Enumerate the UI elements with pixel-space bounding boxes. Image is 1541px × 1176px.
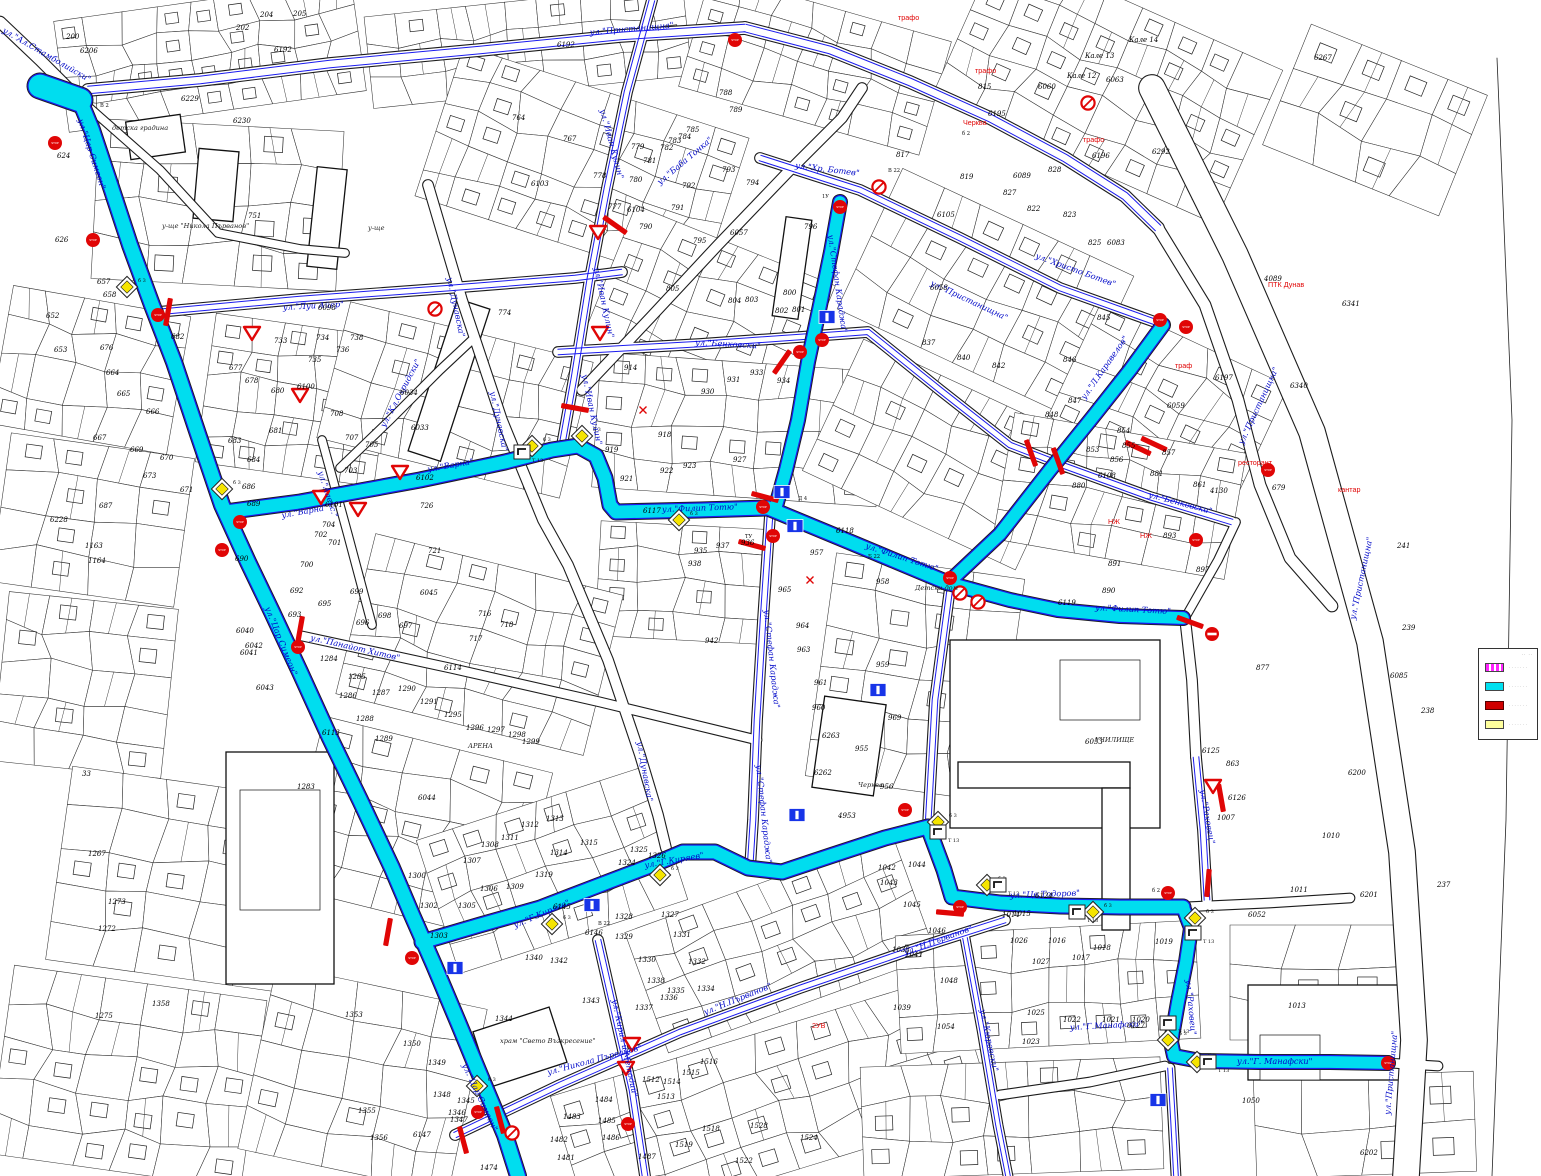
stop-sign-icon: STOP [1161,886,1175,900]
parcel-number: 736 [336,346,350,354]
legend-swatch [1485,701,1504,710]
parcel-number: 863 [1226,760,1240,768]
parcel-number: 942 [705,637,719,645]
parcel-number: 803 [745,296,759,304]
info-sign-icon [584,899,600,912]
parcel-number: 815 [978,83,992,91]
parcel-number: 933 [750,369,764,377]
parcel-number: 1039 [893,1004,911,1012]
svg-text:STOP: STOP [769,534,777,538]
parcel-number: 6126 [1228,794,1246,802]
parcel-number: 6228 [50,516,68,524]
parcel-number: 6105 [937,211,955,219]
svg-text:STOP: STOP [1192,538,1200,542]
parcel-number: 1487 [638,1153,656,1161]
parcel-number: 1290 [398,685,416,693]
parcel-number: 202 [235,24,250,32]
building-footprint [958,762,1130,788]
parcel-number: Кале 14 [1128,36,1158,44]
parcel-number: 1019 [1155,938,1173,946]
svg-text:STOP: STOP [408,956,416,960]
parcel-number: 1013 [1288,1002,1306,1010]
parcel-number: 767 [563,135,577,143]
parcel-number: 1054 [937,1023,955,1031]
stop-sign-icon: STOP [898,803,912,817]
parcel-number: 707 [345,434,359,442]
parcel-number: 778 [593,172,607,180]
yield-sign-icon [350,503,366,516]
parcel-number: 4953 [837,812,856,820]
parcel-number: 1486 [602,1134,620,1142]
parcel-number: 6192 [274,46,292,54]
svg-text:STOP: STOP [154,313,162,317]
poi-label-red: Черква [963,118,987,127]
parcel-number: 6045 [420,589,438,597]
sign-code-label: ТУ [745,534,752,540]
stop-sign-icon: STOP [833,200,847,214]
parcel-number: 697 [399,622,413,630]
info-sign-icon [870,684,886,697]
prohibition-sign-icon [872,180,885,193]
parcel-number: 777 [608,203,622,211]
parcel-number: Кале 13 [1084,52,1115,60]
stop-sign-icon: STOP [1153,313,1167,327]
parcel-number: 6108 [1098,472,1116,480]
red-x-marker-icon [807,577,814,584]
svg-text:STOP: STOP [236,520,244,524]
parcel-number: 1519 [675,1141,693,1149]
parcel-number: 965 [778,586,792,594]
legend-item: ······· [1485,658,1533,677]
parcel-number: 1349 [428,1059,446,1067]
parcel-number: 963 [797,646,811,654]
parcel-number: 671 [180,486,193,494]
poi-label: детска градина [112,124,168,132]
parcel-number: 1331 [673,931,691,939]
parcel-number: 1326 [648,852,666,860]
parcel-number: 825 [1088,239,1102,247]
svg-text:б 3: б 3 [563,914,571,921]
parcel-number: 726 [420,502,434,510]
parcel-number: 6340 [1290,382,1308,390]
parcel-number: 969 [888,714,902,722]
parcel-number: 1016 [1048,937,1066,945]
parcel-number: 669 [130,446,144,454]
legend-item: ······· [1485,696,1533,715]
parcel-number: 237 [1436,881,1451,889]
parcel-number: 1347 [450,1116,468,1124]
info-sign-icon [447,962,463,975]
parcel-number: 6063 [1106,76,1124,84]
parcel-number: 919 [605,446,619,454]
poi-label-red: траф [1175,361,1192,370]
parcel-number: 721 [428,547,441,555]
parcel-number: 1289 [375,735,393,743]
parcel-number: 1027 [1032,958,1050,966]
poi-label-red: кантар [1338,485,1360,494]
parcel-number: 1048 [940,977,958,985]
parcel-number: 205 [292,10,307,18]
parcel-number: 657 [97,278,111,286]
parcel-number: 1483 [563,1113,581,1121]
parcel-number: 959 [876,661,890,669]
stop-sign-icon: STOP [405,951,419,965]
parcel-number: 1275 [95,1012,113,1020]
parcel-number: 840 [957,354,971,362]
parcel-number: 733 [274,337,288,345]
parcel-number: 890 [1102,587,1116,595]
parcel-number: 1291 [420,698,438,706]
stop-sign-icon: STOP [766,529,780,543]
parcel-number: 823 [1063,211,1077,219]
parcel-number: 1018 [1093,944,1111,952]
parcel-number: 937 [716,542,730,550]
parcel-number: 877 [1256,664,1270,672]
parcel-number: 6098 [318,304,336,312]
svg-text:STOP: STOP [818,338,826,342]
parcel-number: 1342 [550,957,568,965]
info-sign-icon [774,486,790,499]
parcel-number: 1302 [420,902,438,910]
parcel-number: 1330 [638,956,656,964]
parcel-number: 796 [804,223,818,231]
parcel-number: 1284 [320,655,338,663]
parcel-number: 779 [631,143,645,151]
parcel-number: 853 [1086,446,1100,454]
parcel-number: 1319 [535,871,553,879]
parcel-number: 846 [1063,356,1077,364]
parcel-number: 1513 [657,1093,675,1101]
parcel-number: 938 [688,560,702,568]
parcel-number: 665 [117,390,131,398]
stop-sign-icon: STOP [1189,533,1203,547]
stop-sign-icon: STOP [621,1117,635,1131]
parcel-number: 652 [46,312,60,320]
parcel-number: 6197 [1215,374,1233,382]
parcel-number: 6101 [325,501,343,509]
stop-sign-icon: STOP [48,136,62,150]
poi-label: УЧИЛИЩЕ [1095,736,1134,744]
parcel-number: 6043 [256,684,274,692]
parcel-number: 6200 [1348,769,1366,777]
svg-text:STOP: STOP [901,808,909,812]
parcel-number: 686 [242,483,256,491]
parcel-number: 960 [812,704,826,712]
poi-label: храм "Свето Възкресение" [500,1037,596,1045]
parcel-number: 891 [1108,560,1121,568]
parcel-number: 6057 [730,229,748,237]
parcel-number: 684 [247,456,260,464]
parcel-number: 1286 [339,692,357,700]
parcel-number: 689 [247,500,261,508]
poi-label-red: НЖ [1108,517,1120,526]
parcel-number: 6229 [181,95,199,103]
parcel-number: 1345 [457,1097,475,1105]
parcel-number: 204 [259,11,273,19]
parcel-number: 1023 [1022,1038,1040,1046]
parcel-number: 893 [1163,532,1177,540]
parcel-number: 708 [330,410,344,418]
parcel-number: 1512 [642,1076,660,1084]
parcel-number: 735 [308,356,322,364]
svg-text:б 3: б 3 [1206,908,1214,915]
parcel-number: 4130 [1209,487,1228,495]
info-sign-icon [787,520,803,533]
parcel-number: 819 [960,173,974,181]
svg-text:б 3: б 3 [949,812,957,819]
parcel-number: 1485 [598,1117,616,1125]
parcel-number: 964 [796,622,809,630]
parcel-number: 704 [322,521,335,529]
parcel-number: 667 [93,434,107,442]
stop-sign-icon: STOP [215,543,229,557]
road-closure-bar-icon [1216,784,1226,812]
parcel-number: 1046 [928,927,946,935]
parcel-number: 1043 [880,879,898,887]
parcel-number: 6103 [531,180,549,188]
building-footprint [240,790,320,910]
parcel-number: 930 [701,388,715,396]
parcel-number: 1295 [444,711,462,719]
svg-text:STOP: STOP [51,141,59,145]
parcel-number: 6040 [236,627,254,635]
parcel-number: 666 [146,408,160,416]
svg-text:б 3: б 3 [671,865,679,872]
poi-label: у-ще [367,224,385,232]
parcel-number: 1022 [1063,1016,1081,1024]
parcel-number: 1313 [546,815,564,823]
parcel-number: 1524 [800,1134,818,1142]
parcel-number: 6100 [297,383,315,391]
parcel-number: 822 [1027,205,1041,213]
parcel-number: 690 [235,555,249,563]
parcel-number: 1348 [433,1091,451,1099]
parcel-number: 880 [1072,482,1086,490]
parcel-number: 1047 [905,951,923,959]
parcel-number: 6267 [1314,54,1332,62]
sign-code-label: В 22 [598,921,610,927]
cadastral-map-svg[interactable]: STOPSTOPSTOPSTOPSTOPSTOPSTOPSTOPSTOPSTOP… [0,0,1541,1176]
parcel-number: 6127 [1127,1022,1145,1030]
parcel-number: 1350 [403,1040,421,1048]
svg-text:STOP: STOP [1182,325,1190,329]
parcel-number: 1522 [735,1157,753,1165]
parcel-number: 701 [328,539,341,547]
parcel-number: 1344 [495,1015,513,1023]
parcel-number: 847 [1068,397,1082,405]
parcel-number: 238 [1420,707,1435,715]
parcel-number: 33 [82,770,91,778]
parcel-number: 802 [775,307,789,315]
parcel-number: 1021 [1102,1016,1120,1024]
parcel-number: 6145 [553,903,571,911]
parcel-number: 774 [498,309,511,317]
parcel-number: 703 [344,467,358,475]
parcel-number: 1358 [152,1000,170,1008]
parcel-number: 1514 [663,1078,681,1086]
parcel-number: 837 [922,339,936,347]
parcel-number: 1314 [550,849,568,857]
parcel-number: 664 [106,369,119,377]
parcel-number: 626 [55,236,69,244]
parcel-number: 695 [318,600,332,608]
poi-label-red: трафо [1083,135,1104,144]
svg-text:STOP: STOP [624,1122,632,1126]
parcel-number: 1285 [348,673,366,681]
parcel-number: 1353 [345,1011,363,1019]
parcel-number: 1042 [878,864,896,872]
parcel-number: 653 [54,346,68,354]
parcel-number: 716 [478,610,492,618]
parcel-number: 1315 [580,839,598,847]
parcel-number: 6102 [416,474,434,482]
parcel-number: 1515 [682,1069,700,1077]
parcel-number: 842 [992,362,1006,370]
parcel-number: 693 [288,611,302,619]
svg-text:б 3: б 3 [233,479,241,486]
parcel-number: 1300 [408,872,426,880]
poi-label-red: НЖ [1140,531,1152,540]
parcel-number: 6118 [836,527,854,535]
parcel-number: 6125 [1202,747,1220,755]
svg-text:STOP: STOP [89,238,97,242]
parcel-number: 1484 [595,1096,613,1104]
legend-swatch [1485,663,1504,672]
sign-code-label: б 2 [962,130,970,137]
parcel-number: 6262 [814,769,832,777]
prohibition-sign-icon [428,302,441,315]
svg-text:STOP: STOP [759,505,767,509]
parcel-number: 1273 [108,898,126,906]
legend-item: ······· [1485,715,1533,734]
map-canvas[interactable]: STOPSTOPSTOPSTOPSTOPSTOPSTOPSTOPSTOPSTOP… [0,0,1541,1176]
poi-label: Черква [858,781,883,789]
parcel-number: 6195 [988,110,1006,118]
parcel-number: 678 [245,377,259,385]
parcel-number: 718 [500,621,514,629]
svg-text:STOP: STOP [956,905,964,909]
parcel-number: 6147 [413,1131,431,1139]
parcel-number: 931 [727,376,740,384]
parcel-number: 6044 [418,794,436,802]
parcel-number: 1312 [521,821,539,829]
parcel-number: 6083 [1107,239,1125,247]
parcel-number: 897 [1196,566,1210,574]
svg-text:Т 13: Т 13 [948,838,959,844]
parcel-number: 794 [746,179,759,187]
svg-text:Т 13: Т 13 [1087,918,1098,924]
parcel-number: 1518 [702,1125,720,1133]
parcel-number: 200 [65,33,80,41]
parcel-number: 1017 [1072,954,1090,962]
parcel-number: 881 [1150,470,1163,478]
parcel-number: 6201 [1360,891,1378,899]
parcel-number: 6060 [1038,83,1056,91]
parcel-number: 738 [350,334,364,342]
parcel-number: 734 [316,334,329,342]
parcel-number: 922 [660,467,674,475]
poi-label-red: ресторант [1238,458,1273,467]
parcel-number: 1356 [370,1134,388,1142]
parcel-number: 1309 [506,883,524,891]
stop-sign-icon: STOP [233,515,247,529]
parcel-number: 800 [783,289,797,297]
poi-label: Детски дом [914,584,959,592]
parcel-number: 1045 [903,901,921,909]
parcel-number: 1311 [501,834,519,842]
parcel-number: 6034 [400,389,418,397]
parcel-number: Кале 12 [1066,72,1097,80]
parcel-number: 934 [777,377,790,385]
parcel-number: 670 [160,454,174,462]
parcel-number: 6041 [240,649,258,657]
parcel-number: 1474 [480,1164,498,1172]
parcel-number: 6089 [1013,172,1031,180]
parcel-number: 828 [1048,166,1062,174]
poi-label-red: ПТК Дунав [1268,280,1304,289]
map-legend: ·· ·· ···························· [1478,648,1538,740]
legend-swatch [1485,720,1504,729]
parcel-number: 1015 [1013,910,1031,918]
parcel-number: 792 [682,182,696,190]
sign-code-label: Б 22 [868,554,880,560]
svg-text:Т 13: Т 13 [532,458,543,464]
parcel-number: 1007 [1217,814,1235,822]
parcel-number: 1272 [98,925,116,933]
parcel-number: 801 [792,306,805,314]
parcel-number: 848 [1045,411,1059,419]
parcel-number: 676 [100,344,114,352]
parcel-number: 1340 [525,954,543,962]
parcel-number: 827 [1003,189,1017,197]
parcel-number: 764 [512,114,525,122]
parcel-number: 1163 [85,542,103,550]
svg-text:STOP: STOP [474,1110,482,1114]
parcel-number: 6059 [1167,402,1185,410]
parcel-number: 696 [356,619,370,627]
parcel-number: 1307 [463,857,481,865]
parcel-number: 855 [1122,442,1136,450]
parcel-number: 857 [1162,449,1176,457]
parcel-number: 1305 [458,902,476,910]
no-entry-sign-icon [1205,627,1219,641]
stop-sign-icon: STOP [151,308,165,322]
parcel-number: 1325 [630,846,648,854]
parcel-number: 1482 [550,1136,568,1144]
parcel-number: 958 [876,578,890,586]
parcel-number: 935 [694,547,708,555]
parcel-number: 717 [469,635,483,643]
stop-sign-icon: STOP [86,233,100,247]
parcel-number: 788 [719,89,733,97]
sign-code-label: Д 4 [798,496,808,502]
parcel-number: 751 [248,212,261,220]
parcel-number: 702 [314,531,328,539]
parcel-number: 1287 [372,689,390,697]
parcel-number: 817 [896,151,910,159]
stop-sign-icon: STOP [815,333,829,347]
svg-text:Т 13: Т 13 [1218,1068,1229,1074]
svg-text:б 3: б 3 [488,1076,496,1083]
svg-text:STOP: STOP [218,548,226,552]
parcel-number: 782 [660,144,674,152]
prohibition-sign-icon [971,595,984,608]
poi-label: АРЕНА [467,742,493,750]
poi-label-red: трафо [975,66,996,75]
parcel-number: 700 [300,561,314,569]
parcel-number: 914 [624,364,637,372]
parcel-number: 6192 [557,41,575,49]
